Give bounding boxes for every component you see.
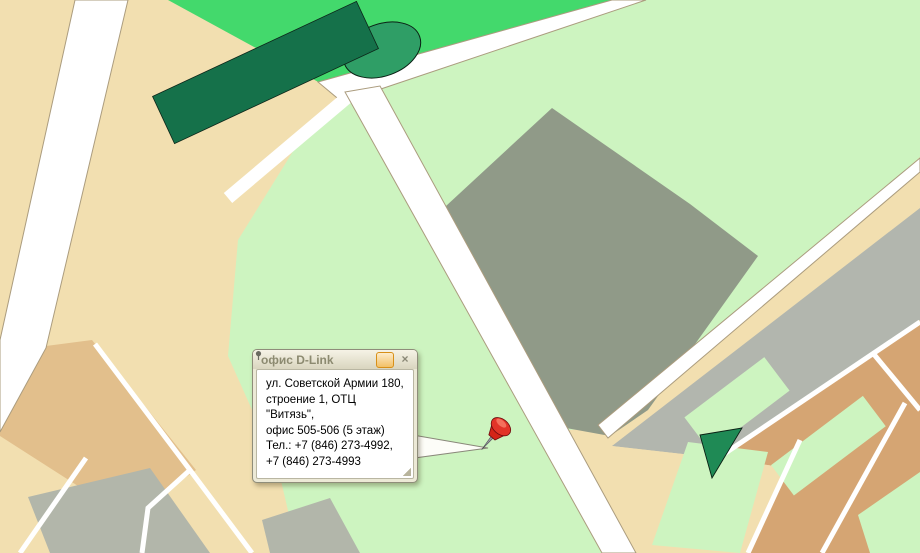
popup-line: ул. Советской Армии 180, xyxy=(266,377,407,393)
resize-grip[interactable] xyxy=(402,467,411,476)
map-viewport[interactable]: офис D-Link × ул. Советской Армии 180, с… xyxy=(0,0,920,553)
close-button[interactable]: × xyxy=(398,353,412,367)
popup-body: ул. Советской Армии 180, строение 1, ОТЦ… xyxy=(256,369,414,479)
popup-title: офис D-Link xyxy=(261,353,334,367)
pin-button[interactable] xyxy=(376,352,394,368)
popup-line: строение 1, ОТЦ "Витязь", xyxy=(266,393,407,424)
popup-line: Тел.: +7 (846) 273-4992, xyxy=(266,439,407,455)
map-canvas[interactable] xyxy=(0,0,920,553)
info-popup: офис D-Link × ул. Советской Армии 180, с… xyxy=(252,349,418,483)
popup-titlebar[interactable]: офис D-Link × xyxy=(253,350,417,369)
popup-line: +7 (846) 273-4993 xyxy=(266,455,407,471)
popup-line: офис 505-506 (5 этаж) xyxy=(266,424,407,440)
pushpin-icon xyxy=(253,350,264,361)
